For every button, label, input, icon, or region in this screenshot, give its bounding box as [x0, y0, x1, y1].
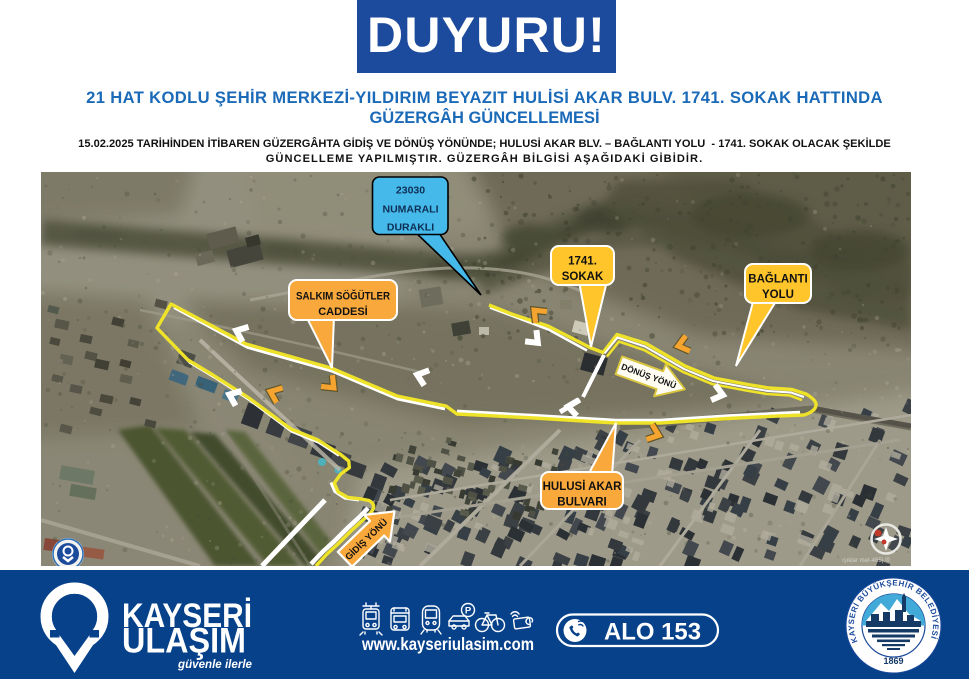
svg-text:BULVARI: BULVARI	[557, 497, 606, 509]
svg-text:P: P	[465, 605, 472, 616]
svg-text:BAĞLANTI: BAĞLANTI	[748, 273, 807, 286]
svg-text:www.kayseriulasim.com: www.kayseriulasim.com	[361, 634, 534, 654]
svg-text:23030: 23030	[396, 185, 425, 197]
svg-text:ULAŞIM: ULAŞIM	[122, 622, 246, 661]
svg-text:ALO 153: ALO 153	[604, 619, 701, 646]
svg-text:NUMARALI: NUMARALI	[383, 204, 439, 216]
svg-text:HULUSİ AKAR: HULUSİ AKAR	[543, 480, 622, 493]
svg-text:SALKIM SÖĞÜTLER: SALKIM SÖĞÜTLER	[296, 290, 390, 303]
svg-text:1741.: 1741.	[568, 256, 597, 268]
svg-text:YOLU: YOLU	[762, 289, 794, 301]
svg-text:DURAKLI: DURAKLI	[387, 222, 434, 234]
svg-text:ışıklar met-465) ®: ışıklar met-465) ®	[842, 557, 890, 564]
svg-text:1869: 1869	[883, 656, 903, 666]
svg-text:güvenle ilerle: güvenle ilerle	[177, 657, 252, 671]
svg-text:SOKAK: SOKAK	[562, 271, 604, 283]
svg-text:CADDESİ: CADDESİ	[318, 305, 368, 318]
